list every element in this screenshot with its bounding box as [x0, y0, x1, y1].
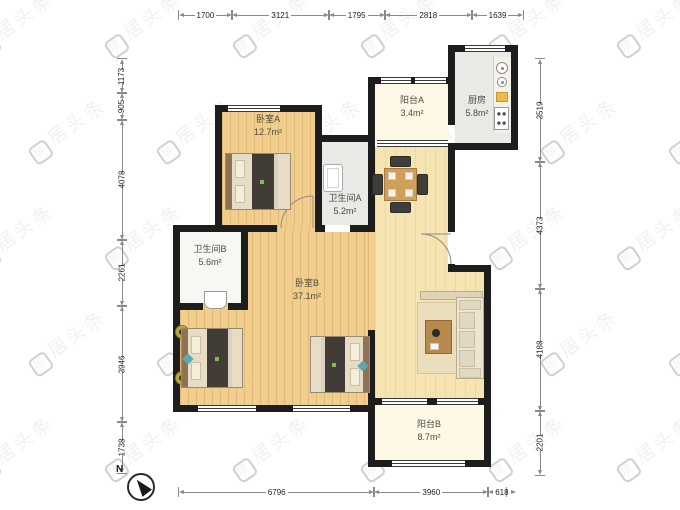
watermark-house-icon: 居	[231, 32, 259, 60]
watermark-house-icon: 居	[487, 456, 515, 484]
chair-icon	[390, 202, 411, 213]
watermark: 居居头条	[22, 303, 112, 378]
dim-segment: 3960	[373, 487, 489, 497]
watermark-house-icon: 居	[231, 456, 259, 484]
wall	[484, 398, 491, 467]
bathtub-icon	[323, 164, 343, 192]
sofa-icon	[456, 297, 484, 379]
wall	[478, 398, 491, 405]
dim-segment: 1639	[471, 10, 524, 20]
window	[198, 405, 256, 412]
watermark-house-icon: 居	[667, 350, 680, 378]
dim-segment: 3946	[117, 305, 127, 423]
watermark: 居居头条	[0, 409, 60, 484]
wall	[427, 398, 437, 405]
dim-segment: 3121	[231, 10, 330, 20]
floor-plan: 居居头条居居头条居居头条居居头条居居头条居居头条居居头条居居头条居居头条居居头条…	[0, 0, 680, 510]
watermark-house-icon: 居	[103, 32, 131, 60]
dim-segment: 4078	[117, 119, 127, 241]
watermark: 居居头条	[610, 0, 680, 60]
dim-segment: 2201	[535, 410, 545, 476]
bed-icon	[310, 336, 370, 393]
wall	[448, 150, 455, 232]
watermark: 居居头条	[482, 197, 572, 272]
watermark-house-icon: 居	[27, 350, 55, 378]
watermark: 居居头条	[98, 0, 188, 60]
bathroomB-door	[204, 291, 227, 309]
room-label-balconyB: 阳台B 8.7m²	[417, 418, 441, 443]
room-name: 卫生间A	[328, 193, 361, 203]
watermark: 居居头条	[610, 409, 680, 484]
watermark: 居居头条	[610, 197, 680, 272]
watermark-house-icon: 居	[359, 32, 387, 60]
passage-floor	[368, 232, 375, 330]
watermark: 居居头条	[534, 91, 624, 166]
watermark-house-icon: 居	[155, 138, 183, 166]
compass-needle	[132, 476, 152, 497]
window	[228, 105, 280, 112]
room-area: 37.1m²	[293, 291, 321, 301]
compass-icon	[127, 473, 155, 501]
wall	[448, 143, 518, 150]
watermark-house-icon: 居	[0, 32, 3, 60]
room-area: 3.4m²	[400, 108, 423, 118]
room-label-kitchen: 厨房 5.8m²	[465, 94, 488, 119]
watermark: 居居头条	[662, 91, 680, 166]
bed-icon	[181, 328, 243, 388]
bed-icon	[225, 153, 291, 210]
watermark: 居居头条	[482, 409, 572, 484]
chair-icon	[417, 174, 428, 195]
watermark-house-icon: 居	[615, 244, 643, 272]
stove-icon	[494, 107, 509, 130]
room-label-bedroomA: 卧室A 12.7m²	[254, 113, 282, 138]
sliding-door	[437, 398, 478, 405]
entry-door-arc	[417, 230, 457, 268]
room-name: 阳台A	[400, 95, 424, 105]
window	[465, 45, 505, 52]
room-area: 8.7m²	[417, 432, 440, 442]
room-name: 卫生间B	[193, 244, 226, 254]
watermark-house-icon: 居	[0, 244, 3, 272]
wall	[228, 303, 248, 310]
dim-segment: 905	[117, 92, 127, 121]
cutting-board-icon	[496, 92, 508, 102]
dim-segment: 3519	[535, 58, 545, 163]
room-name: 厨房	[468, 95, 486, 105]
sliding-door	[382, 398, 427, 405]
wall	[511, 45, 518, 150]
window	[381, 77, 411, 84]
wall	[173, 225, 248, 232]
dim-segment: 618	[487, 487, 507, 497]
dim-segment: 2261	[117, 239, 127, 307]
watermark-house-icon: 居	[487, 244, 515, 272]
room-name: 阳台B	[417, 419, 441, 429]
wall	[173, 303, 203, 310]
wall	[241, 225, 248, 310]
wall	[315, 135, 375, 142]
wall	[484, 265, 491, 405]
room-label-balconyA: 阳台A 3.4m²	[400, 94, 424, 119]
sliding-door	[377, 140, 448, 147]
tray-icon	[430, 343, 439, 350]
room-area: 5.2m²	[333, 206, 356, 216]
room-label-bedroomB: 卧室B 37.1m²	[293, 277, 321, 302]
compass-north-label: N	[116, 464, 123, 475]
sink-icon	[496, 62, 508, 74]
room-label-bathroomB: 卫生间B 5.6m²	[193, 243, 226, 268]
dim-segment: 1700	[178, 10, 233, 20]
watermark-house-icon: 居	[0, 456, 3, 484]
dim-segment: 1795	[328, 10, 386, 20]
chair-icon	[372, 174, 383, 195]
dim-segment: 2818	[384, 10, 474, 20]
room-label-bathroomA: 卫生间A 5.2m²	[328, 192, 361, 217]
room-name: 卧室A	[256, 114, 280, 124]
dim-segment: 4188	[535, 288, 545, 412]
wall	[350, 225, 375, 232]
chair-icon	[390, 156, 411, 167]
dim-segment: 4373	[535, 161, 545, 290]
dim-segment: 6796	[178, 487, 375, 497]
room-area: 5.8m²	[465, 108, 488, 118]
window	[293, 405, 350, 412]
dining-table-icon	[384, 168, 417, 201]
wall	[368, 77, 375, 232]
watermark: 居居头条	[0, 197, 60, 272]
watermark-house-icon: 居	[27, 138, 55, 166]
watermark: 居居头条	[534, 303, 624, 378]
watermark: 居居头条	[662, 303, 680, 378]
pot-icon	[497, 77, 507, 87]
watermark-house-icon: 居	[667, 138, 680, 166]
watermark: 居居头条	[0, 0, 60, 60]
watermark-house-icon: 居	[615, 32, 643, 60]
dim-segment: 1173	[117, 58, 127, 94]
room-area: 5.6m²	[198, 257, 221, 267]
kettle-icon	[432, 329, 440, 337]
room-name: 卧室B	[295, 278, 319, 288]
wall	[215, 105, 222, 232]
wall	[448, 45, 455, 125]
window	[392, 460, 465, 467]
room-area: 12.7m²	[254, 127, 282, 137]
window	[415, 77, 446, 84]
watermark-house-icon: 居	[615, 456, 643, 484]
watermark: 居居头条	[226, 409, 316, 484]
watermark: 居居头条	[22, 91, 112, 166]
